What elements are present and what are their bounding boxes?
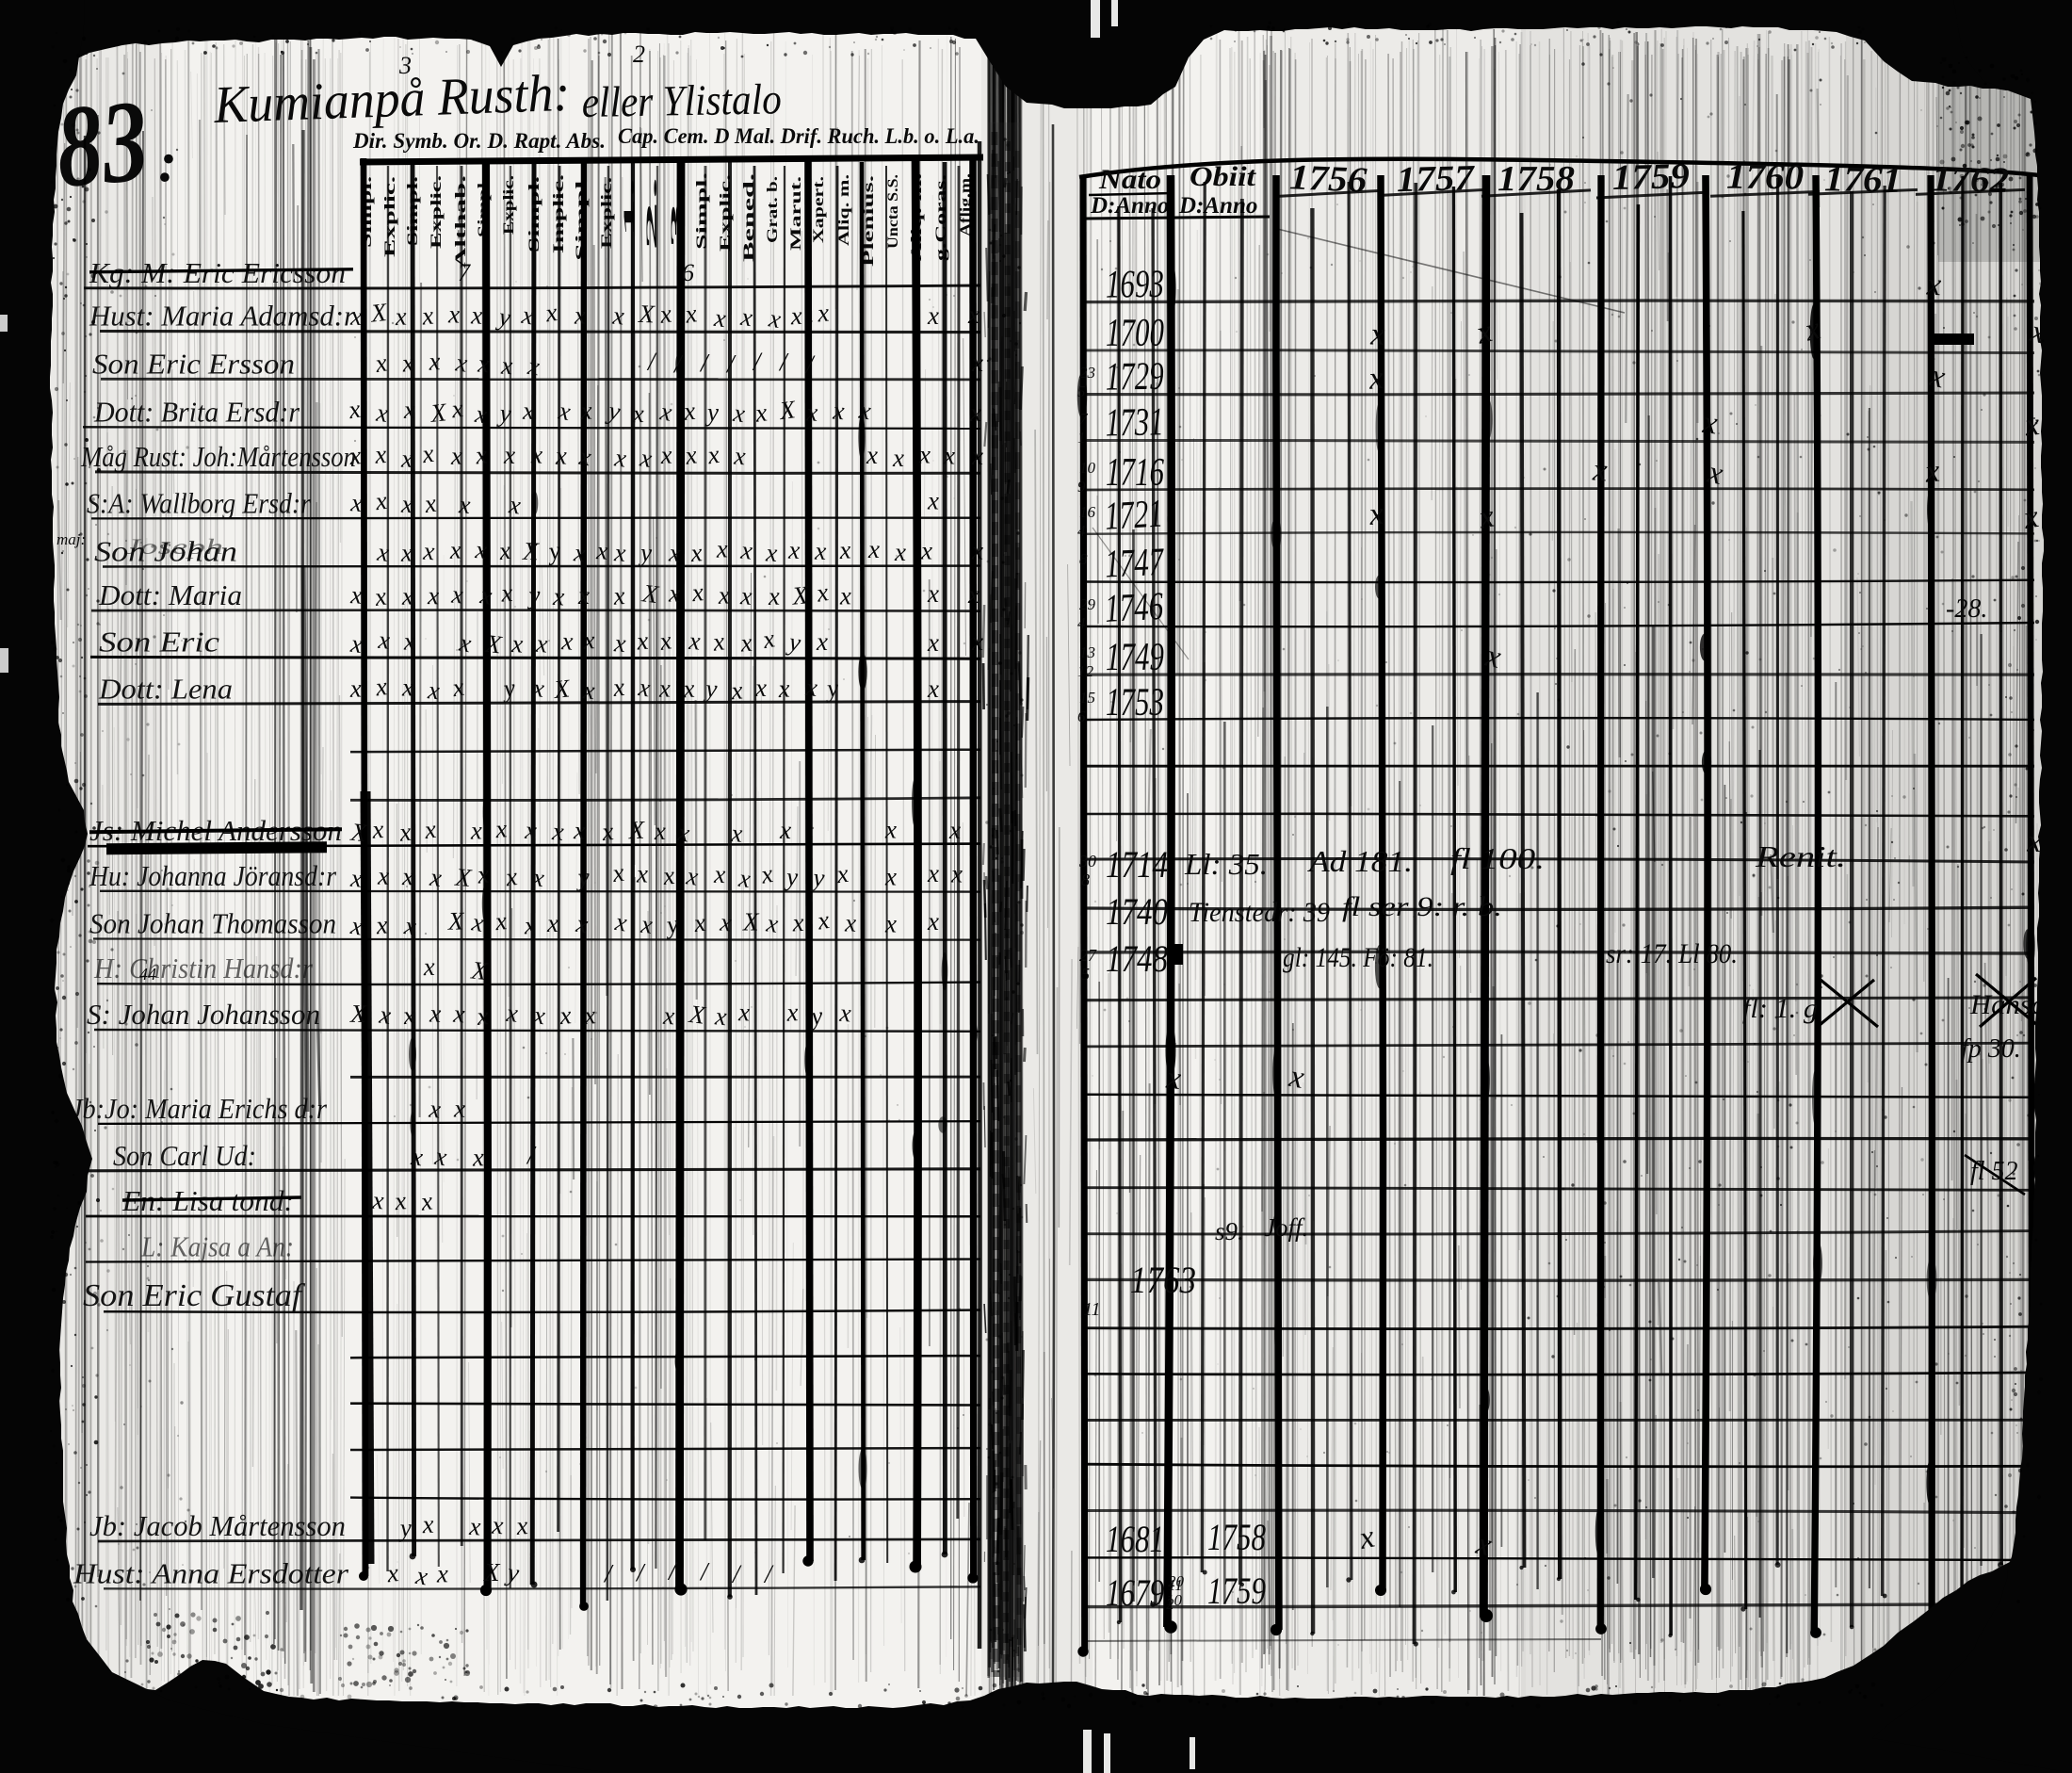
svg-text:Aliq. m.: Aliq. m. <box>836 174 852 246</box>
svg-text:83: 83 <box>51 75 153 212</box>
svg-text:x: x <box>1923 454 1941 490</box>
svg-text:Hust: Anna Ersdotter: Hust: Anna Ersdotter <box>73 1556 349 1589</box>
svg-text:x: x <box>927 486 939 514</box>
svg-text:x: x <box>814 537 827 565</box>
svg-text:fp 30.: fp 30. <box>1961 1034 2021 1064</box>
svg-text:x: x <box>816 299 831 328</box>
svg-text:Son Carl Ud:: Son Carl Ud: <box>113 1139 256 1172</box>
svg-text:x: x <box>738 628 753 658</box>
svg-text:x: x <box>595 536 609 565</box>
svg-text:x: x <box>884 909 897 937</box>
svg-text:x: x <box>927 301 939 330</box>
svg-text:x: x <box>394 302 408 332</box>
svg-text:Cap. Cem. D Mal. Drif. Ruch.: Cap. Cem. D Mal. Drif. Ruch. L.b. o. L.a… <box>618 124 979 148</box>
svg-text:x: x <box>477 349 491 378</box>
svg-text:X: X <box>638 300 656 329</box>
svg-text:x: x <box>785 998 800 1027</box>
svg-text:Xapert.: Xapert. <box>811 176 827 243</box>
svg-text:X: X <box>627 816 646 845</box>
svg-text:x: x <box>844 908 857 936</box>
svg-text:x: x <box>713 1001 728 1031</box>
svg-text:x: x <box>494 814 509 843</box>
svg-text:x: x <box>688 626 702 656</box>
svg-text:x: x <box>374 910 389 939</box>
svg-text:x: x <box>579 397 593 426</box>
svg-text:x: x <box>452 1000 466 1029</box>
svg-text:Son Eric: Son Eric <box>99 625 219 658</box>
svg-text:1731: 1731 <box>1105 400 1164 445</box>
svg-text:x: x <box>839 581 852 610</box>
svg-text:2: 2 <box>1166 1595 1174 1613</box>
svg-text:x: x <box>867 535 880 563</box>
svg-text:x: x <box>447 300 461 328</box>
svg-text:Joff.: Joff. <box>1264 1213 1308 1242</box>
svg-text:x: x <box>400 490 414 519</box>
svg-text:x: x <box>777 675 791 704</box>
svg-text:x: x <box>950 859 963 887</box>
svg-text:Explic.: Explic. <box>599 177 615 249</box>
svg-text:x: x <box>468 1512 482 1541</box>
svg-text:1749: 1749 <box>1106 636 1164 679</box>
svg-text:1716: 1716 <box>1106 451 1164 495</box>
svg-text:Dott: Lena: Dott: Lena <box>98 672 233 705</box>
svg-text:x: x <box>577 581 590 610</box>
svg-text:Explic.: Explic. <box>501 175 517 235</box>
svg-text:Dir. Symb. Or. D. Rapt. Ab: Dir. Symb. Or. D. Rapt. Abs. <box>352 129 606 153</box>
svg-text:Uncta S.S.: Uncta S.S. <box>885 174 901 249</box>
svg-text:x: x <box>401 673 413 701</box>
svg-text:x: x <box>349 580 364 610</box>
svg-text:x: x <box>739 581 753 610</box>
svg-text:Son Eric Ersson: Son Eric Ersson <box>92 347 295 380</box>
svg-text:27: 27 <box>1079 946 1097 965</box>
svg-text:Son Eric Gustaf: Son Eric Gustaf <box>83 1278 306 1313</box>
svg-text:4: 4 <box>1077 522 1086 540</box>
svg-text:x: x <box>470 816 483 844</box>
svg-text:x: x <box>658 675 672 703</box>
svg-text:30: 30 <box>1078 852 1096 870</box>
svg-text:x: x <box>448 535 461 563</box>
svg-text:x: x <box>552 582 566 611</box>
svg-text:x: x <box>373 440 387 469</box>
svg-text:2: 2 <box>633 41 645 68</box>
svg-text:x: x <box>534 629 549 659</box>
svg-text:S: Johan Johansson: S: Johan Johansson <box>87 998 320 1031</box>
svg-text:Son Johan Thomasson: Son Johan Thomasson <box>89 907 336 940</box>
svg-text:Jb:Jo: Maria Erichs d:r: Jb:Jo: Maria Erichs d:r <box>71 1092 328 1125</box>
svg-text:x: x <box>943 442 955 470</box>
svg-text:x: x <box>546 909 558 937</box>
svg-text:x: x <box>401 582 414 610</box>
svg-text:1747: 1747 <box>1104 541 1165 587</box>
svg-text:Nato: Nato <box>1098 164 1161 195</box>
svg-text:x: x <box>453 1094 466 1122</box>
svg-text:11: 11 <box>1083 1299 1101 1320</box>
svg-text:x: x <box>767 582 780 610</box>
svg-text:x: x <box>436 1559 449 1587</box>
svg-text:x: x <box>474 535 489 564</box>
svg-text:x: x <box>754 674 767 702</box>
svg-text:x: x <box>927 628 939 657</box>
svg-text:1748: 1748 <box>1106 937 1168 980</box>
svg-text:L: Kajsa a An:: L: Kajsa a An: <box>140 1230 294 1263</box>
svg-text:8: 8 <box>1081 870 1090 889</box>
svg-text:x: x <box>377 626 392 655</box>
svg-text:6: 6 <box>1077 708 1086 725</box>
svg-text:fl ser 9: r. b.: fl ser 9: r. b. <box>1342 891 1502 922</box>
svg-text:x: x <box>805 398 818 426</box>
svg-text:Dott: Maria: Dott: Maria <box>98 578 242 611</box>
svg-text:x: x <box>789 301 803 331</box>
svg-text:1758: 1758 <box>1207 1516 1266 1558</box>
svg-text:1763: 1763 <box>1130 1259 1196 1301</box>
svg-text:X: X <box>742 907 760 935</box>
svg-text:Jb: Jacob Mårtensson: Jb: Jacob Mårtensson <box>89 1509 346 1542</box>
svg-text:x: x <box>457 490 471 519</box>
svg-text:S:A: Wallborg Ersd:r: S:A: Wallborg Ersd:r <box>87 486 312 519</box>
svg-text:x: x <box>927 579 939 608</box>
svg-text:fl 52: fl 52 <box>1970 1157 2018 1186</box>
svg-text:x: x <box>574 301 587 329</box>
svg-text:eller Ylistalo: eller Ylistalo <box>581 74 782 126</box>
svg-text:x: x <box>523 911 536 939</box>
svg-text:maj:: maj: <box>57 530 86 548</box>
svg-text:9: 9 <box>1077 478 1086 496</box>
svg-text:x: x <box>832 396 846 425</box>
svg-text:1759: 1759 <box>1207 1570 1266 1612</box>
svg-text:x: x <box>884 863 897 891</box>
svg-text:1729: 1729 <box>1105 355 1164 399</box>
svg-text:1700: 1700 <box>1106 312 1164 355</box>
svg-text:x: x <box>927 907 939 935</box>
svg-text:x: x <box>1925 267 1942 302</box>
svg-text:x: x <box>524 816 539 845</box>
svg-text:D:Anno: D:Anno <box>1178 193 1257 219</box>
svg-text:1: 1 <box>1077 429 1086 447</box>
svg-text:3: 3 <box>398 52 412 79</box>
svg-text:x: x <box>403 396 416 424</box>
svg-text:x: x <box>729 819 743 848</box>
svg-text:6: 6 <box>682 259 694 286</box>
svg-text:D:Anno: D:Anno <box>1090 193 1169 219</box>
svg-text:15: 15 <box>1079 689 1095 707</box>
svg-text:x: x <box>503 441 516 469</box>
svg-text:x: x <box>581 675 596 705</box>
svg-text:1693: 1693 <box>1106 263 1164 307</box>
svg-text:x: x <box>611 581 625 610</box>
svg-text:x: x <box>927 675 939 703</box>
svg-text:gl: 145. Fö: 81.: gl: 145. Fö: 81. <box>1283 942 1433 973</box>
svg-text:x: x <box>573 816 587 845</box>
svg-text:x: x <box>400 445 413 473</box>
svg-text:sr: 17. Ll 80.: sr: 17. Ll 80. <box>1606 938 1738 969</box>
svg-text:Explic.: Explic. <box>382 176 398 257</box>
svg-text:Kumianpå Rusth:: Kumianpå Rusth: <box>212 64 571 135</box>
svg-text:x: x <box>920 537 932 565</box>
svg-text:1679: 1679 <box>1106 1571 1164 1614</box>
svg-text:x: x <box>667 538 681 567</box>
svg-text:x: x <box>530 440 543 468</box>
svg-text:5: 5 <box>1081 965 1090 984</box>
svg-text:Obiit: Obiit <box>1190 161 1257 192</box>
svg-text:x: x <box>681 675 695 704</box>
svg-text:x: x <box>450 442 463 470</box>
svg-text:-28.: -28. <box>1946 594 1987 624</box>
svg-text:x: x <box>635 626 650 656</box>
svg-text:1746: 1746 <box>1104 585 1164 631</box>
svg-text::: : <box>158 131 177 193</box>
svg-text:12: 12 <box>1077 662 1094 680</box>
svg-text:1740: 1740 <box>1106 890 1168 933</box>
svg-text:x: x <box>491 1511 505 1540</box>
svg-text:x: x <box>348 864 364 893</box>
svg-text:x: x <box>514 1511 529 1540</box>
svg-text:x: x <box>1591 452 1609 488</box>
svg-text:x: x <box>632 399 645 428</box>
svg-text:Hansd: Hansd <box>1969 989 2047 1020</box>
svg-text:1.: 1. <box>622 177 638 238</box>
svg-text:x: x <box>550 817 565 846</box>
svg-text:x: x <box>787 536 801 564</box>
svg-text:x: x <box>713 860 726 888</box>
svg-text:x: x <box>377 862 390 890</box>
svg-text:x: x <box>348 488 364 517</box>
svg-text:1759: 1759 <box>1611 156 1690 198</box>
svg-text:x: x <box>791 908 805 937</box>
svg-text:Marut.: Marut. <box>788 176 804 251</box>
svg-text:x: x <box>884 815 897 843</box>
svg-text:13: 13 <box>1079 643 1095 661</box>
svg-text:x: x <box>402 626 415 655</box>
svg-text:X: X <box>522 537 541 566</box>
svg-text:y: y <box>704 399 719 427</box>
svg-text:x: x <box>470 301 483 329</box>
svg-text:x: x <box>522 397 535 425</box>
svg-text:1681: 1681 <box>1106 1518 1164 1560</box>
svg-text:x: x <box>582 626 596 655</box>
svg-text:Hust: Maria Adamsd:r: Hust: Maria Adamsd:r <box>89 300 356 333</box>
svg-text:x: x <box>427 581 440 610</box>
svg-text:Tienstedr: 39: Tienstedr: 39 <box>1189 897 1330 928</box>
svg-text:x: x <box>450 580 465 610</box>
svg-text:x: x <box>948 816 961 844</box>
svg-text:x: x <box>1367 361 1384 397</box>
svg-text:x: x <box>505 999 520 1028</box>
svg-text:x: x <box>717 580 730 609</box>
svg-text:x: x <box>892 444 904 472</box>
svg-text:x: x <box>499 578 513 608</box>
svg-text:10: 10 <box>1079 459 1096 477</box>
svg-text:x: x <box>837 535 851 564</box>
svg-text:s9.: s9. <box>1215 1217 1244 1245</box>
svg-text:1721: 1721 <box>1104 492 1164 538</box>
svg-text:H: Christin Hansd:r: H: Christin Hansd:r <box>93 952 314 984</box>
svg-text:x: x <box>428 347 442 376</box>
svg-text:Ll: 35.: Ll: 35. <box>1184 847 1268 881</box>
svg-text:x: x <box>765 538 779 567</box>
svg-text:x: x <box>715 534 728 562</box>
svg-text:Grat. b.: Grat. b. <box>765 176 781 243</box>
svg-text:x: x <box>804 673 819 702</box>
svg-text:x: x <box>348 441 363 470</box>
svg-text:X: X <box>483 1558 501 1586</box>
svg-text:44: 44 <box>139 965 156 984</box>
svg-text:x: x <box>471 1143 484 1171</box>
svg-text:x: x <box>500 351 514 381</box>
svg-text:Ad 181.: Ad 181. <box>1307 844 1413 878</box>
svg-text:x: x <box>401 862 414 890</box>
svg-text:x: x <box>894 538 906 566</box>
svg-text:23: 23 <box>1079 364 1095 382</box>
svg-text:x: x <box>729 675 744 705</box>
svg-text:x: x <box>422 537 436 566</box>
svg-text:x: x <box>1369 317 1385 351</box>
svg-text:Joseph: Joseph <box>124 535 223 559</box>
svg-text:x: x <box>612 628 627 658</box>
svg-text:11: 11 <box>1168 1576 1183 1594</box>
svg-text:x: x <box>737 998 751 1026</box>
svg-text:fl: 1. g: fl: 1. g <box>1742 993 1818 1024</box>
svg-text:7: 7 <box>458 259 471 286</box>
svg-text:Dott: Brita Ersd:r: Dott: Brita Ersd:r <box>93 395 300 428</box>
svg-text:fl 100.: fl 100. <box>1450 841 1545 875</box>
svg-text:x: x <box>838 999 852 1028</box>
svg-text:1714: 1714 <box>1106 843 1168 886</box>
svg-text:x: x <box>719 908 734 937</box>
svg-text:x: x <box>612 538 626 567</box>
svg-text:5: 5 <box>1077 382 1086 400</box>
svg-text:Måg Rust: Joh:Mårtensson: Måg Rust: Joh:Mårtensson <box>80 440 356 473</box>
svg-text:X: X <box>447 906 466 935</box>
svg-text:8: 8 <box>1079 550 1088 568</box>
svg-text:x: x <box>510 629 525 659</box>
svg-text:x: x <box>348 674 362 702</box>
svg-text:x: x <box>371 1186 385 1215</box>
svg-text:x: x <box>349 302 363 331</box>
svg-text:29: 29 <box>1079 595 1096 613</box>
svg-text:x: x <box>918 441 931 469</box>
svg-text:X: X <box>349 1000 368 1028</box>
svg-text:x: x <box>927 859 939 887</box>
svg-text:x: x <box>422 952 435 981</box>
svg-text:x: x <box>654 817 667 845</box>
svg-text:x: x <box>662 1001 676 1031</box>
svg-text:x: x <box>421 1510 435 1539</box>
svg-text:x: x <box>816 627 828 656</box>
svg-text:x: x <box>779 816 792 844</box>
svg-text:x: x <box>659 441 673 470</box>
svg-text:Simpl.: Simpl. <box>694 172 710 250</box>
svg-text:Renit.: Renit. <box>1755 839 1846 873</box>
svg-text:x: x <box>429 999 442 1027</box>
svg-text:16: 16 <box>1079 503 1096 521</box>
svg-text:x: x <box>610 301 625 331</box>
svg-text:4: 4 <box>1077 614 1086 632</box>
svg-text:x: x <box>370 815 384 844</box>
svg-text:1753: 1753 <box>1106 681 1164 724</box>
svg-text:x: x <box>400 539 413 567</box>
svg-text:x: x <box>558 1000 573 1030</box>
svg-text:x: x <box>688 538 704 567</box>
svg-text:x: x <box>668 578 681 607</box>
svg-text:x: x <box>555 442 568 470</box>
svg-text:Hu: Johanna Jöransd:r: Hu: Johanna Jöransd:r <box>89 859 337 892</box>
svg-text:x: x <box>866 441 878 469</box>
svg-text:x: x <box>733 441 747 470</box>
svg-text:x: x <box>636 860 648 888</box>
svg-text:1760: 1760 <box>1726 157 1804 198</box>
svg-text:x: x <box>560 626 575 656</box>
svg-text:x: x <box>475 1001 490 1031</box>
